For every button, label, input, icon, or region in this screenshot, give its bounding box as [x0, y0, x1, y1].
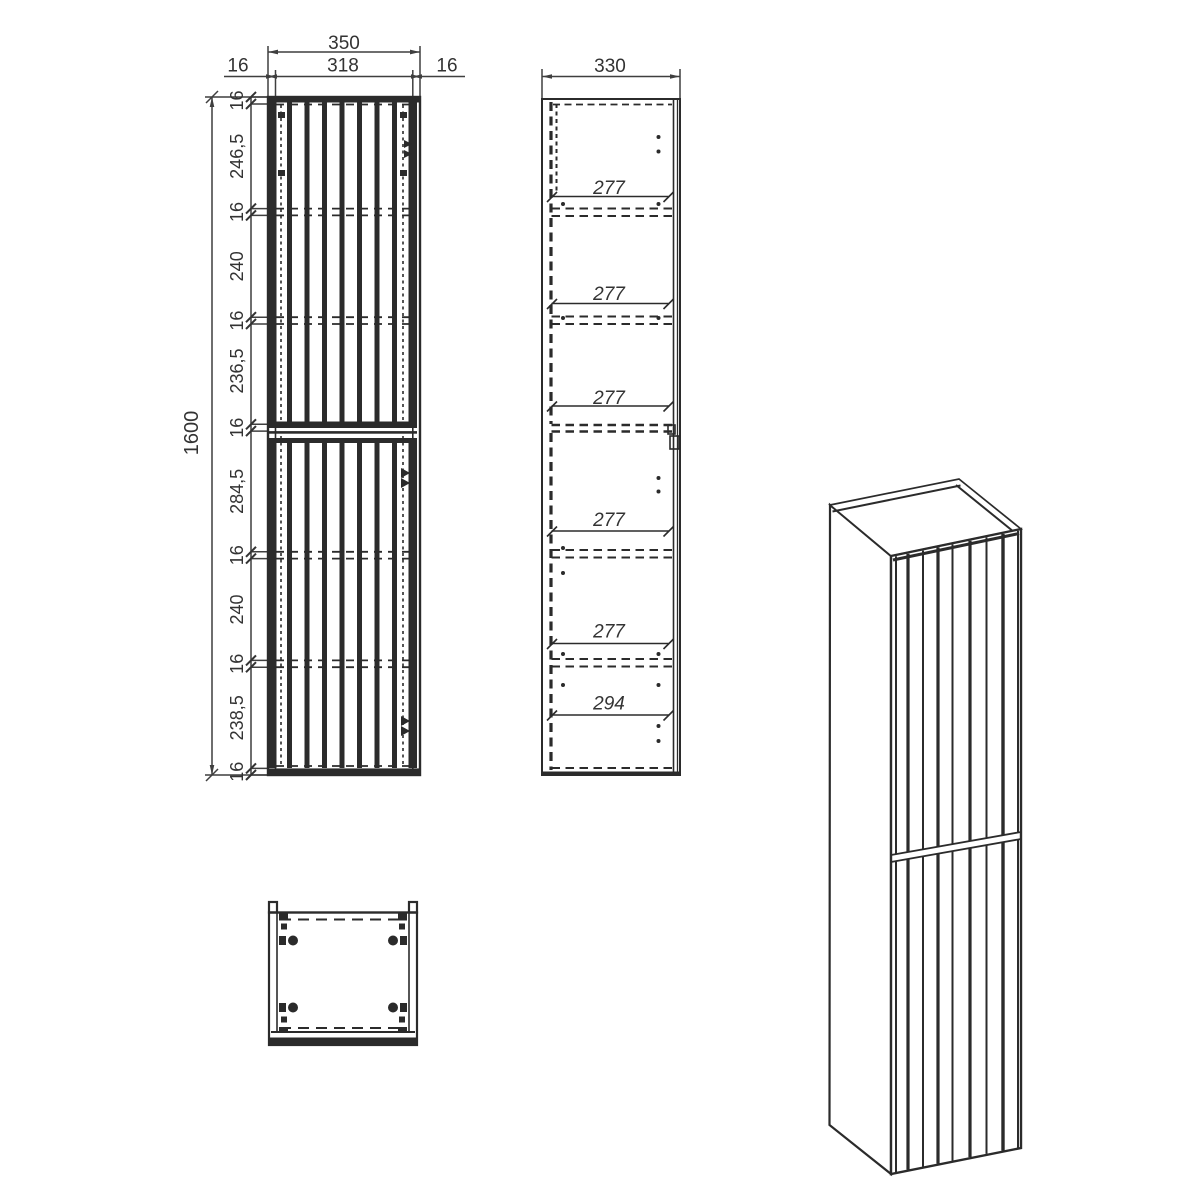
- svg-text:16: 16: [227, 90, 247, 110]
- svg-text:294: 294: [592, 694, 625, 715]
- svg-text:277: 277: [592, 622, 626, 643]
- svg-text:16: 16: [227, 762, 247, 782]
- svg-text:16: 16: [227, 418, 247, 438]
- svg-text:277: 277: [592, 284, 626, 305]
- svg-text:238,5: 238,5: [227, 695, 247, 740]
- svg-text:16: 16: [227, 654, 247, 674]
- svg-text:284,5: 284,5: [227, 469, 247, 514]
- svg-text:16: 16: [227, 545, 247, 565]
- svg-text:1600: 1600: [181, 411, 203, 456]
- svg-text:318: 318: [327, 56, 359, 77]
- svg-text:16: 16: [436, 56, 457, 77]
- svg-text:277: 277: [592, 510, 626, 531]
- svg-text:350: 350: [328, 33, 360, 54]
- svg-text:236,5: 236,5: [227, 348, 247, 393]
- svg-text:240: 240: [227, 594, 247, 624]
- svg-text:16: 16: [227, 202, 247, 222]
- svg-text:246,5: 246,5: [227, 134, 247, 179]
- svg-text:330: 330: [594, 56, 626, 77]
- svg-text:16: 16: [227, 311, 247, 331]
- svg-text:16: 16: [227, 56, 248, 77]
- svg-text:240: 240: [227, 251, 247, 281]
